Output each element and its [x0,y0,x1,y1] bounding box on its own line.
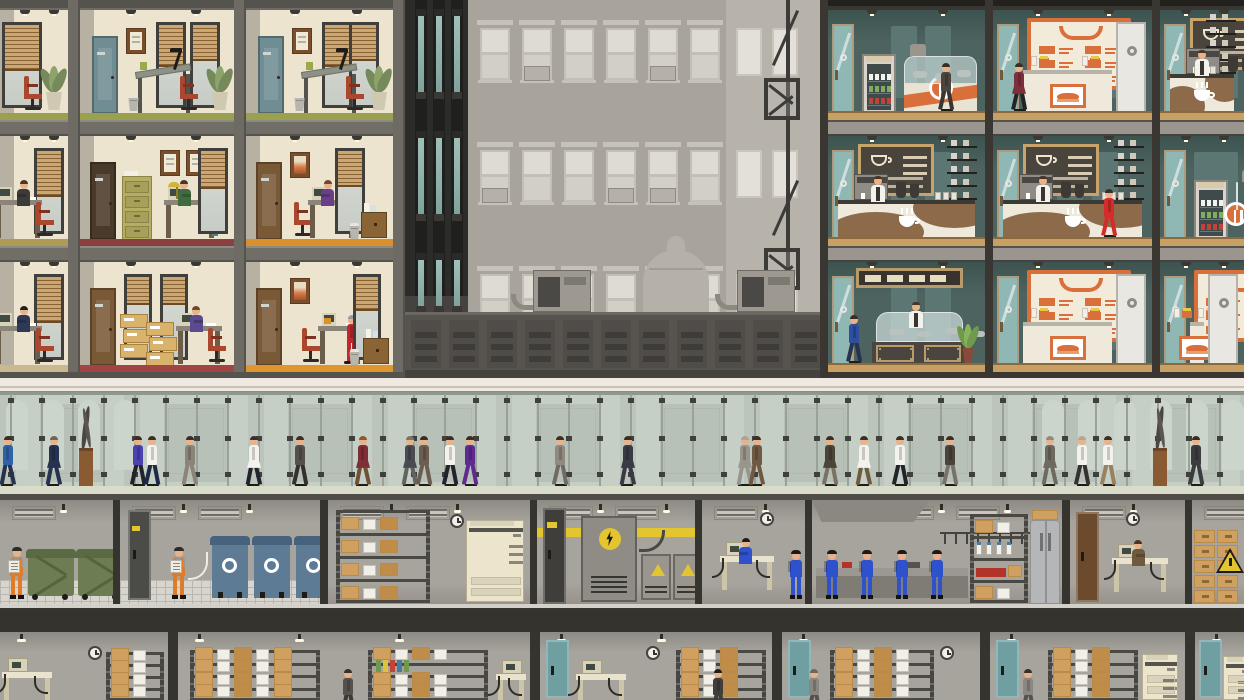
worker[interactable] [893,548,911,600]
hair [896,436,904,440]
screen [0,189,10,196]
storage-box-icon [835,672,853,685]
office-unit[interactable] [246,136,393,246]
menu-item-art [1039,46,1055,54]
hair [742,538,750,542]
pane [524,152,550,174]
electrical-panel-icon [581,516,637,602]
menu-line [1059,300,1073,302]
arm [17,320,26,323]
leg [470,462,478,485]
storage-box-icon [195,684,213,697]
spider-fitting-icon [1124,398,1130,403]
basement-door[interactable] [1199,640,1222,698]
hair [1198,50,1206,53]
torso [17,189,30,206]
desk-leg [166,205,171,238]
tower-window-strip [418,138,424,214]
steam [901,208,903,214]
shelf-unit [830,650,934,700]
barista[interactable] [870,176,886,202]
porthole-icon [1127,46,1137,56]
file-box-icon [1194,545,1215,558]
lamp-light [1222,140,1226,142]
room-office[interactable] [1070,500,1185,604]
office-chair [36,328,56,362]
arm [755,447,758,460]
binder-icon [404,660,409,672]
lamp-light [194,14,198,16]
slot [719,332,741,338]
lamp-light [246,510,253,513]
menu-item-art [1039,298,1055,306]
pane [566,152,592,174]
slab-line [0,120,405,122]
office-building[interactable] [0,0,405,378]
cafe-floor-strip [1160,239,1244,246]
slab-line [820,120,1244,122]
cable [34,676,48,694]
cafe-unit-coffee[interactable] [993,136,1152,246]
tool-icon [944,534,946,544]
storage-box-icon [146,322,174,336]
spider-fitting-icon [814,398,820,403]
city-backdrop [405,0,820,378]
cafe-customer[interactable] [844,309,864,365]
drink [1219,212,1223,218]
food-court-building[interactable] [820,0,1244,378]
kitchen-door[interactable] [1208,274,1238,365]
tower-window-strip [418,16,424,92]
lobby-pedestrian[interactable] [0,430,18,488]
pane [482,152,508,174]
room-recycling[interactable] [120,500,320,604]
lamp-light [195,639,204,642]
sculpture-pedestal [1153,448,1167,486]
menu-art [909,275,925,282]
hair [20,180,28,184]
ac-unit-icon[interactable] [608,188,634,203]
office-floor-strip [246,113,393,120]
boot [826,595,831,599]
paper-stack [896,674,909,685]
lamp-light [454,510,461,513]
mailroom-worker[interactable] [1018,664,1038,700]
slot [795,344,817,350]
basement-door[interactable] [996,640,1019,698]
lobby-pedestrian[interactable] [460,430,480,488]
lobby[interactable] [0,378,1244,500]
storage-box-icon [234,672,252,685]
office-door[interactable] [92,36,118,114]
hair [134,436,142,440]
panel [876,345,914,362]
cap [452,9,462,16]
menu-line [1059,304,1069,306]
cafe-floor-strip [993,113,1152,120]
ac-unit-icon[interactable] [650,66,676,81]
lamp-light [870,140,874,142]
pane [482,276,508,298]
column [1152,0,1160,378]
room-archive[interactable] [782,632,980,700]
seated-person[interactable] [320,180,336,208]
office-door[interactable] [256,288,282,366]
cafe-floor-strip [828,113,985,120]
spider-fitting-icon [597,472,603,477]
office-door[interactable] [258,36,284,114]
paper-stack [896,649,909,660]
seated-person[interactable] [16,306,32,334]
cafe-unit-coffee[interactable] [1160,10,1244,120]
window-ledge [477,20,513,25]
room-electrical[interactable] [537,500,695,604]
drink [1213,224,1217,230]
cafe-unit-sandwich[interactable] [993,262,1152,372]
cafe-glass-door[interactable] [997,276,1019,365]
cap [416,131,426,138]
office-door[interactable] [256,162,282,240]
desk-plant [306,62,313,70]
leg [903,576,907,597]
drink [875,86,879,92]
lobby-pedestrian[interactable] [142,430,162,488]
cap [434,9,444,16]
storage-box-icon [412,647,430,660]
backdrop-window [606,28,636,80]
pane [738,30,760,74]
lobby-pedestrian[interactable] [1040,430,1060,488]
storage-box-icon [874,684,892,697]
drink [1207,200,1211,206]
lobby-pedestrian[interactable] [820,430,840,488]
post [31,99,34,107]
seated-person[interactable] [188,306,204,334]
arm [813,680,816,691]
drawer [1228,686,1244,694]
pane [566,30,592,52]
lamp-light [52,266,56,268]
spider-fitting-icon [566,398,572,403]
fax-machine-icon [502,660,522,674]
binder-icon [376,660,381,672]
seated-person[interactable] [16,180,32,208]
handle [551,666,554,675]
basement-door[interactable] [128,510,151,600]
room-storage[interactable] [328,500,530,604]
office-unit[interactable] [0,136,68,246]
barista[interactable] [908,302,924,328]
leg [854,339,862,362]
window-ledge [561,142,597,147]
lamp-light [1036,14,1040,16]
kitchen-door[interactable] [1116,274,1146,365]
storage-box-icon [373,684,391,697]
steam [911,208,913,214]
cafe-unit-sushi[interactable] [828,262,985,372]
lamp-light [941,140,945,142]
room-archive[interactable] [0,632,168,700]
cup-handle [1053,157,1057,163]
shelf-unit [106,652,164,700]
room-itdesk[interactable] [702,500,805,604]
paper-stack [896,686,909,697]
warehouse-worker[interactable] [338,664,358,700]
menu-line [1105,66,1115,68]
buttons [1167,668,1175,671]
spider-fitting-icon [845,398,851,403]
worker[interactable] [823,548,841,600]
coffee-pot-icon [1075,184,1084,198]
column [985,0,993,378]
cafe-unit-sandwich[interactable] [1160,262,1244,372]
post [43,351,46,359]
lobby-pedestrian[interactable] [1072,430,1092,488]
barista[interactable] [1035,176,1051,202]
lid [1227,657,1243,662]
spider-fitting-icon [721,472,727,477]
office-chair [180,76,200,110]
lobby-pedestrian[interactable] [890,430,910,488]
fax-machine-icon [582,660,602,674]
lamp-light [657,639,666,642]
paper-stack [133,650,146,661]
hair [1105,189,1113,193]
dumpster-icon [28,556,74,596]
takeaway-cup-icon [943,192,949,200]
plant-icon [42,66,66,112]
cafe-floor-strip [828,239,985,246]
maintenance-worker[interactable] [169,546,189,600]
deco [164,154,176,172]
fridge-icon [1030,520,1060,604]
office-door[interactable] [90,162,116,240]
spider-fitting-icon [380,436,386,441]
worker[interactable] [787,548,805,600]
storage-box-icon [195,647,213,660]
lobby-pedestrian[interactable] [550,430,570,488]
shelf [1114,172,1144,174]
cafe-unit-coffee[interactable] [828,136,985,246]
ac-unit-icon[interactable] [650,188,676,203]
cafe-customer[interactable] [1099,183,1119,239]
lobby-pedestrian[interactable] [1098,430,1118,488]
seated-person[interactable] [1130,540,1146,568]
lobby-pedestrian[interactable] [44,430,64,488]
steam [1196,82,1198,88]
lobby-pedestrian[interactable] [747,430,767,488]
arm [1027,680,1030,691]
cap [452,92,462,99]
lamp-light [129,266,133,268]
basement-level-1[interactable] [0,500,1244,612]
food-tray-icon [1182,310,1192,318]
lobby-pedestrian[interactable] [618,430,638,488]
arm [1108,200,1111,212]
room-archive[interactable] [540,632,772,700]
wheel [218,592,223,598]
ac-unit-icon[interactable] [524,66,550,81]
slot [757,344,779,350]
handle [133,550,136,559]
office-unit[interactable] [80,10,234,120]
slot [605,332,627,338]
paper-stack [395,649,408,660]
cafe-glass-door[interactable] [1164,150,1186,239]
beanie [12,547,22,551]
cafe-customer[interactable] [936,57,956,113]
spider-fitting-icon [225,472,231,477]
spider-fitting-icon [70,472,76,477]
storage-box-icon [341,563,359,576]
menu-line [903,172,927,175]
sandwich-logo-icon [1050,84,1086,108]
ac-unit-icon[interactable] [482,188,508,203]
mailroom-worker[interactable] [804,664,824,700]
window-blinds [37,277,61,321]
boot [861,595,866,599]
office-door[interactable] [90,288,116,366]
room-archive[interactable] [178,632,530,700]
register-icon [910,44,926,56]
spider-fitting-icon [70,398,76,403]
spider-fitting-icon [783,472,789,477]
worker[interactable] [858,548,876,600]
grill [742,277,764,307]
storage-box-icon [120,344,148,358]
storage-box-icon [835,659,853,672]
arm [321,194,330,197]
cafe-unit-sandwich[interactable] [993,10,1152,120]
drink-cup-icon [1198,308,1204,318]
drink [875,74,879,80]
slab-line [820,134,1244,136]
arrow-gap [268,562,275,565]
basement-door[interactable] [546,640,569,698]
cup [951,140,957,146]
cap [434,92,444,99]
drink [1201,200,1205,206]
drawer [1147,675,1175,683]
warehouse-worker[interactable] [708,664,728,700]
maintenance-worker[interactable] [7,546,27,600]
office-unit[interactable] [0,262,68,372]
room-waste[interactable] [0,500,113,604]
paper-stack [434,649,447,660]
room-archive[interactable] [990,632,1185,700]
lobby-pedestrian[interactable] [414,430,434,488]
basement-door[interactable] [1076,512,1099,602]
drink [869,74,873,80]
lobby-pedestrian[interactable] [440,430,460,488]
cafe-customer[interactable] [1009,57,1029,113]
spider-fitting-icon [1217,472,1223,477]
drink [1207,224,1211,230]
shelf-board [970,580,1028,583]
paper-stack [857,674,870,685]
hose-icon [188,552,208,580]
spider-fitting-icon [1000,436,1006,441]
office-unit[interactable] [246,262,393,372]
computer-icon [0,187,12,200]
transformer-icon [641,554,671,600]
deco [166,158,174,160]
office-unit[interactable] [0,10,68,120]
kitchen-door[interactable] [1116,22,1146,113]
beanie [174,547,184,551]
room-workshop[interactable] [812,500,1062,604]
spider-fitting-icon [876,398,882,403]
pane [608,55,634,78]
office-unit[interactable] [80,136,234,246]
leg [938,576,942,597]
lamp-light [355,266,359,268]
lobby-pedestrian[interactable] [244,430,264,488]
tower-window-strip [436,260,442,306]
basement-level-2[interactable] [0,632,1244,700]
desk-plant [140,62,147,70]
lobby-pedestrian[interactable] [353,430,373,488]
room-boxes[interactable] [1192,500,1244,604]
seated-person[interactable] [738,538,754,566]
office-unit[interactable] [246,10,393,120]
deco [134,215,140,217]
barista[interactable] [1194,50,1210,76]
wave-art [913,200,975,228]
lobby-pedestrian[interactable] [290,430,310,488]
food-tray-icon [1039,310,1049,318]
backdrop-window [522,150,552,202]
shelf-unit [368,650,488,700]
door-sign [547,522,557,528]
worker[interactable] [928,548,946,600]
deco [134,200,140,202]
deco [294,156,306,174]
armrest [305,336,316,339]
spider-fitting-icon [163,472,169,477]
lid [76,549,113,558]
copier-icon [1223,656,1244,700]
arm [949,447,952,460]
cafe-unit-deli[interactable] [1160,136,1244,246]
panel [96,174,110,226]
deco [85,575,113,597]
backdrop-window [736,28,762,76]
base [37,233,53,236]
hair [359,436,367,440]
cafe-glass-door[interactable] [832,24,854,113]
lamp-light [17,639,26,642]
lobby-pedestrian[interactable] [180,430,200,488]
grill [538,277,560,307]
lobby-pedestrian[interactable] [854,430,874,488]
lobby-pedestrian[interactable] [1186,430,1206,488]
post [43,225,46,233]
desk-leg [304,78,308,114]
hair [1046,436,1054,440]
cafe-unit-deli[interactable] [828,10,985,120]
blind-bar [352,59,376,61]
deco [132,41,140,43]
wall-clock-icon [646,646,660,660]
shelf-board [336,533,430,536]
menu-line [1105,304,1115,306]
handle [793,666,796,675]
office-unit[interactable] [80,262,234,372]
room-archive[interactable] [1195,632,1244,700]
lobby-pedestrian[interactable] [940,430,960,488]
dark-tower [405,0,468,312]
